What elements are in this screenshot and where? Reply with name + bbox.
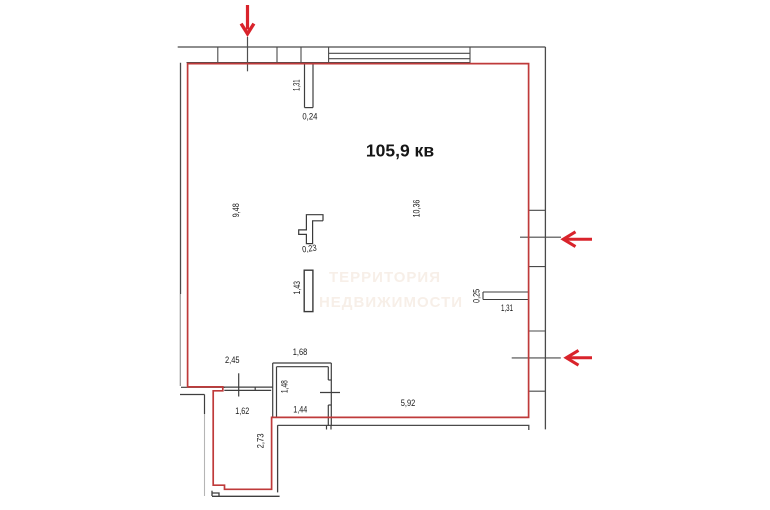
svg-text:1,31: 1,31 [501,303,513,313]
svg-text:1,44: 1,44 [293,405,307,415]
svg-text:1,31: 1,31 [292,79,302,91]
svg-text:0,23: 0,23 [302,243,318,255]
svg-text:2,73: 2,73 [256,433,266,448]
svg-text:1,48: 1,48 [280,380,290,393]
svg-text:1,62: 1,62 [235,406,249,416]
svg-text:9,48: 9,48 [231,203,241,217]
svg-text:5,92: 5,92 [401,398,416,408]
svg-text:10,36: 10,36 [411,200,421,218]
svg-text:2,45: 2,45 [225,355,240,365]
svg-text:0,24: 0,24 [302,111,317,121]
svg-text:1,43: 1,43 [292,281,302,295]
svg-text:1,68: 1,68 [293,347,308,357]
svg-text:105,9 кв: 105,9 кв [366,140,434,160]
svg-text:ТЕРРИТОРИЯ: ТЕРРИТОРИЯ [329,269,441,286]
svg-text:0,25: 0,25 [471,289,481,303]
svg-text:НЕДВИЖИМОСТИ: НЕДВИЖИМОСТИ [319,294,463,311]
